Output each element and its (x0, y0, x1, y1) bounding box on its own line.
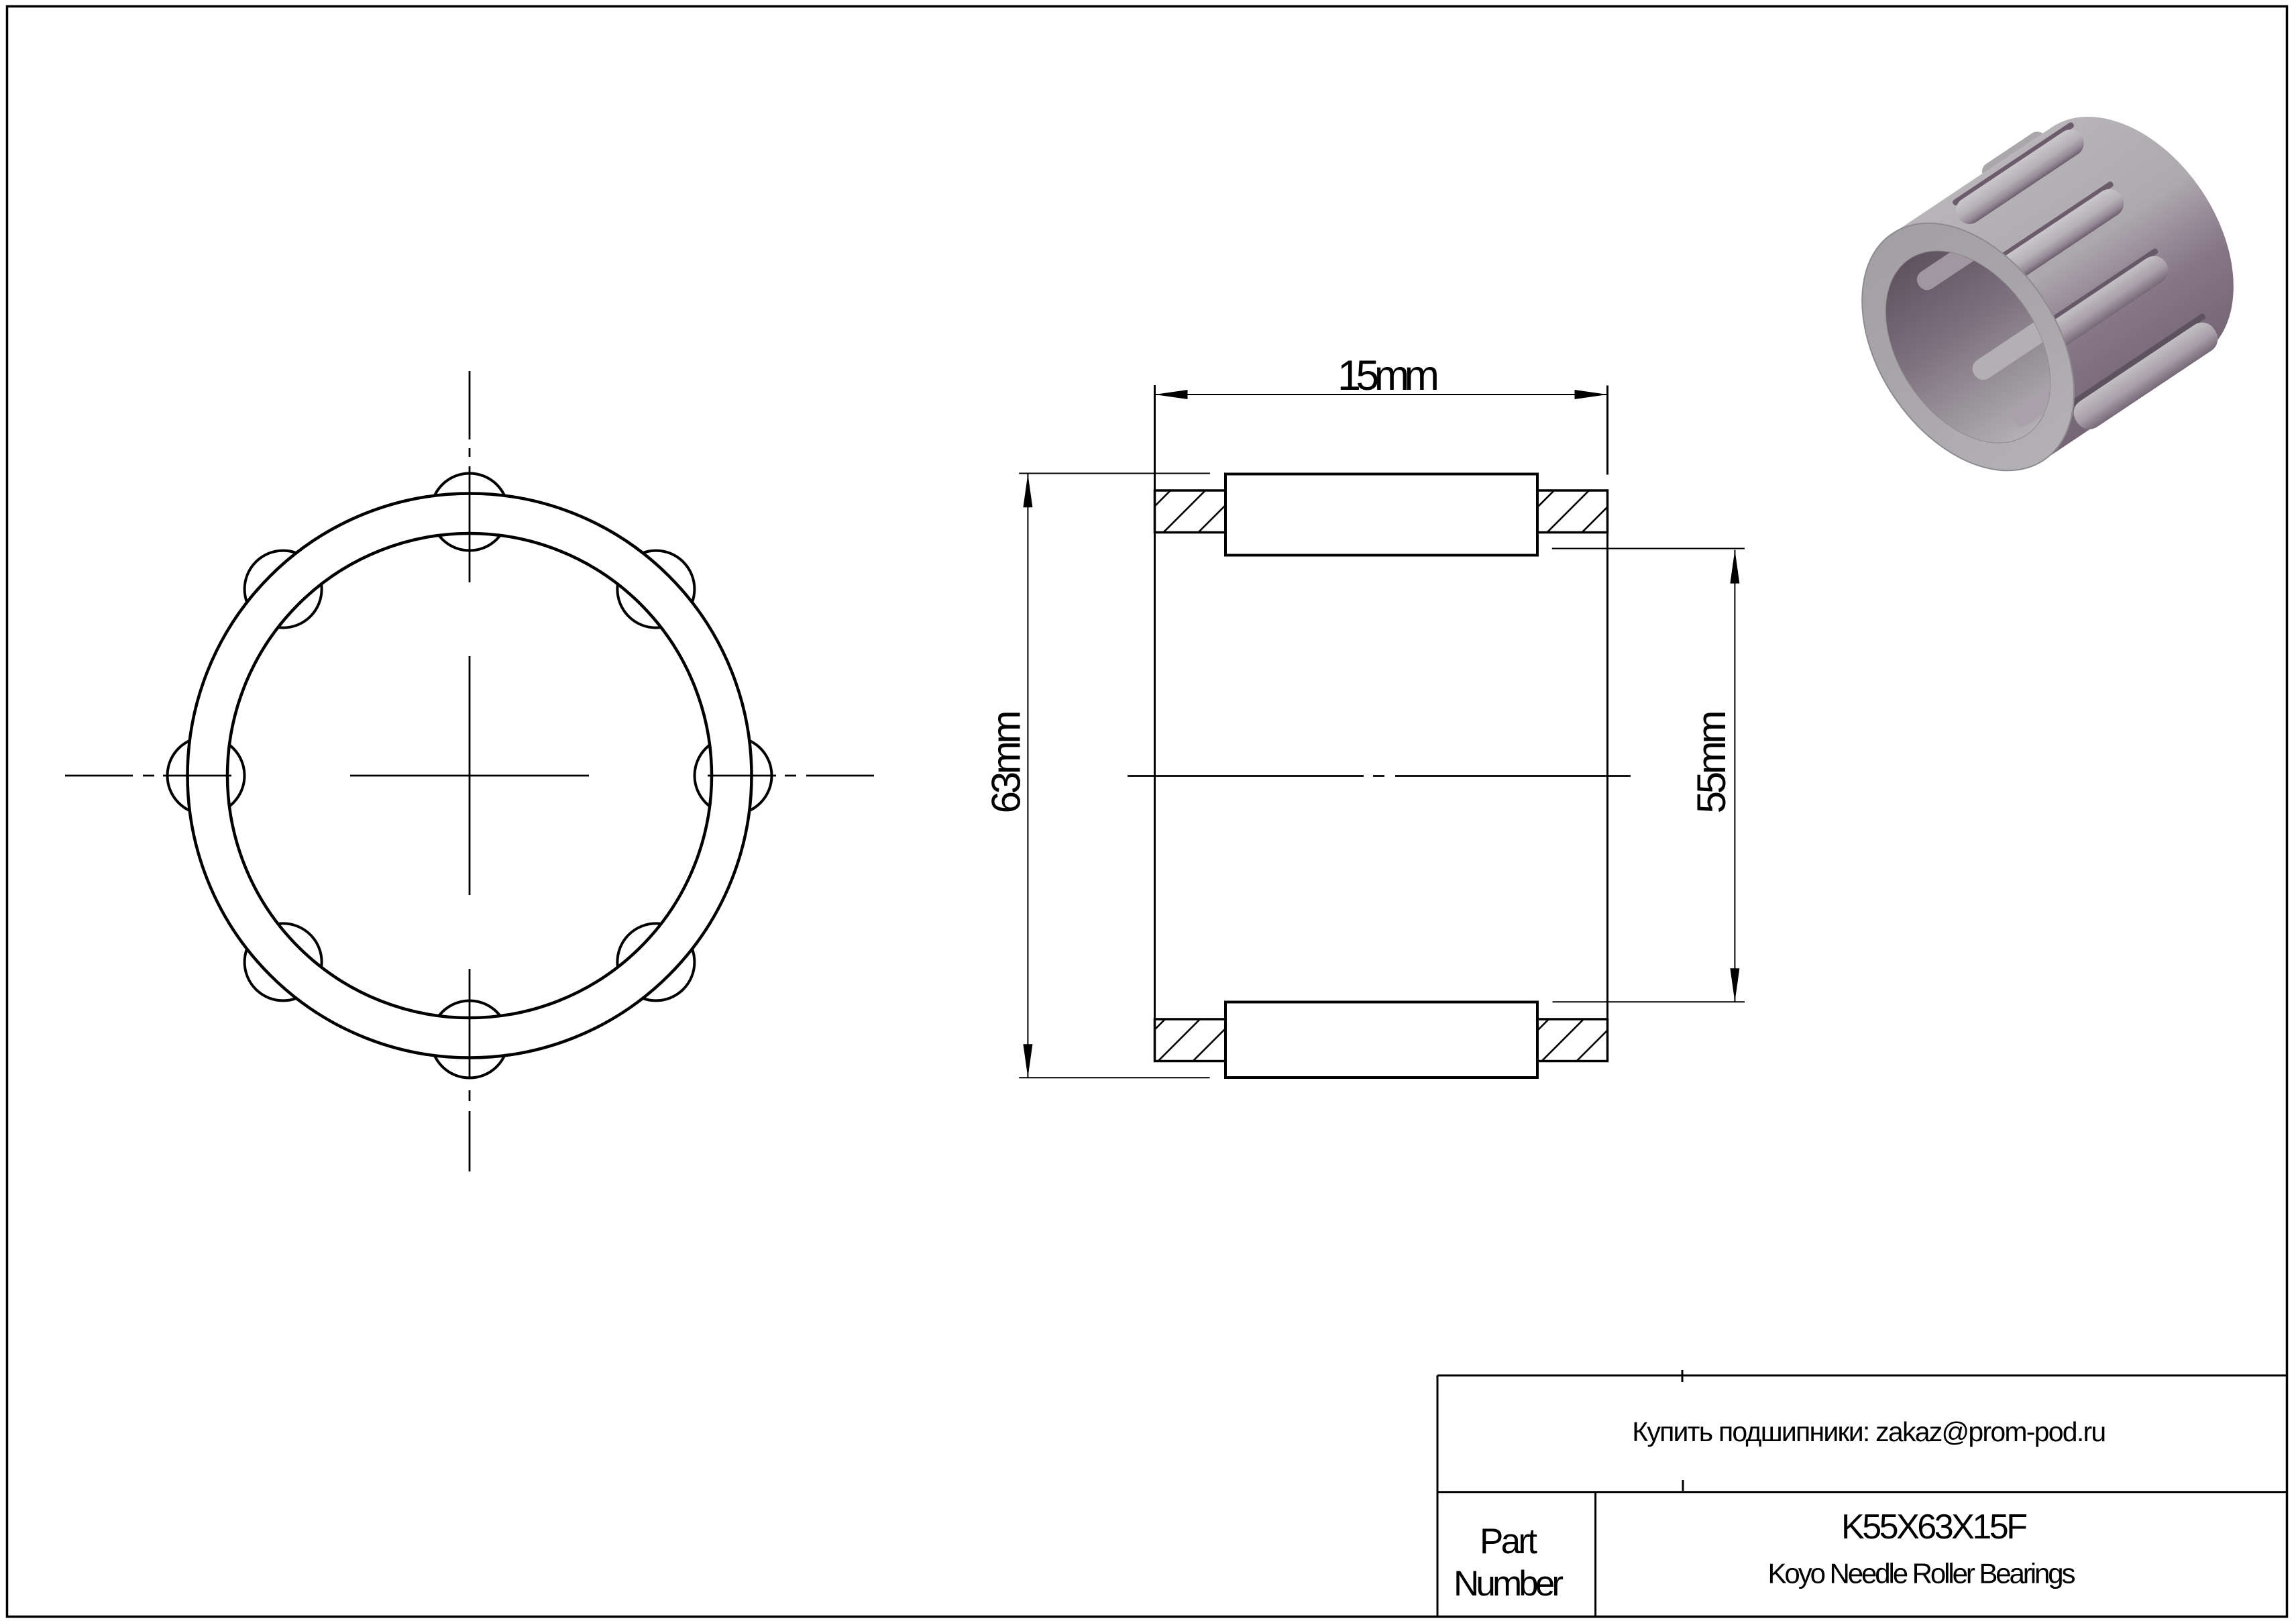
svg-text:Купить подшипники: zakaz@prom-: Купить подшипники: zakaz@prom-pod.ru (1632, 1416, 2106, 1447)
svg-text:15mm: 15mm (1337, 352, 1439, 399)
svg-text:63mm: 63mm (984, 710, 1029, 813)
svg-text:Part: Part (1480, 1522, 1537, 1561)
svg-text:K55X63X15F: K55X63X15F (1841, 1508, 2028, 1547)
svg-text:Number: Number (1454, 1564, 1564, 1604)
svg-text:55mm: 55mm (1689, 710, 1734, 813)
svg-text:Koyo Needle Roller Bearings: Koyo Needle Roller Bearings (1768, 1558, 2076, 1589)
